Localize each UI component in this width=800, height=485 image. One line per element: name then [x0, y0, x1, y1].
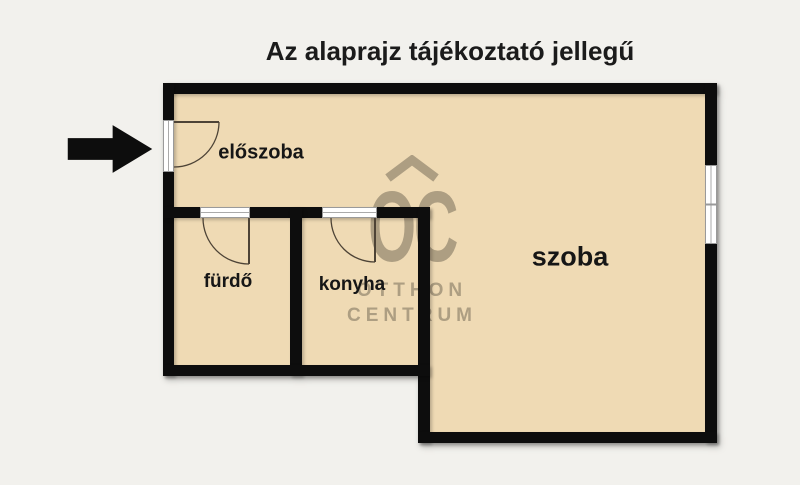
wall-right — [705, 83, 717, 443]
room-label-furdo: fürdő — [204, 271, 253, 293]
floor-plan: OC OTTHON CENTRUM előszoba fürdő ko — [0, 0, 800, 485]
watermark-logo: OC — [368, 189, 456, 265]
furdo-door-opening — [200, 207, 250, 218]
room-label-szoba: szoba — [532, 242, 609, 273]
wall-top — [163, 83, 717, 94]
konyha-door-opening — [322, 207, 377, 218]
wall-konyha-szoba-divider — [418, 207, 430, 443]
szoba-window — [705, 165, 717, 244]
wall-furdo-konyha-divider — [290, 207, 302, 376]
watermark: OC OTTHON CENTRUM — [341, 155, 483, 325]
entrance-door-opening — [163, 120, 174, 172]
wall-szoba-bottom — [418, 432, 717, 443]
room-label-konyha: konyha — [319, 274, 386, 296]
page: Az alaprajz tájékoztató jellegű OC OTTHO… — [0, 0, 800, 485]
watermark-name-line2: CENTRUM — [341, 306, 483, 325]
room-label-eloszoba: előszoba — [218, 142, 304, 165]
wall-bottom-left — [163, 365, 430, 376]
